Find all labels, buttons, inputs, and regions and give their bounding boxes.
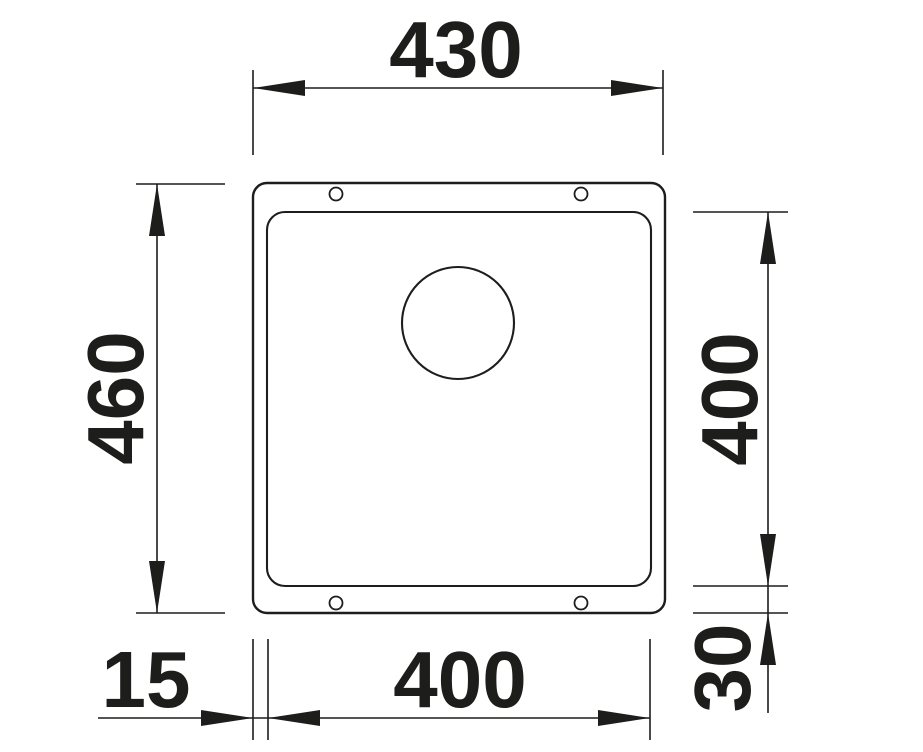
arrowhead-left-icon [268,710,320,726]
technical-drawing: 430 460 400 30 [0,0,923,752]
sink-outline-group [253,183,665,613]
dim-rim-offset-bottom: 30 [678,613,788,712]
dim-label-bowl-width: 400 [393,635,526,724]
sink-bowl [267,212,651,586]
drain-hole [402,267,514,379]
arrowhead-right-icon [611,80,663,96]
mounting-hole-bottom-right [575,597,588,610]
sink-outer-rim [253,183,665,613]
arrowhead-right-icon [598,710,650,726]
mounting-hole-top-right [575,188,588,201]
arrowhead-right-icon [201,710,253,726]
arrowhead-down-icon [760,534,776,586]
dim-label-outer-width: 430 [389,5,522,94]
dim-outer-height: 460 [71,184,225,613]
dim-outer-width: 430 [253,5,663,155]
arrowhead-left-icon [253,80,305,96]
mounting-hole-top-left [330,188,343,201]
dim-label-bowl-height: 400 [685,332,774,465]
sink-dimension-drawing-svg: 430 460 400 30 [0,0,923,752]
arrowhead-up-icon [760,212,776,264]
arrowhead-down-icon [149,561,165,613]
dim-label-outer-height: 460 [71,331,160,464]
mounting-hole-bottom-left [330,597,343,610]
dim-bottom-group: 15 400 [98,635,650,740]
dim-label-rim-offset-bottom: 30 [678,624,767,713]
dim-label-rim-offset-left: 15 [102,635,191,724]
arrowhead-up-icon [149,184,165,236]
